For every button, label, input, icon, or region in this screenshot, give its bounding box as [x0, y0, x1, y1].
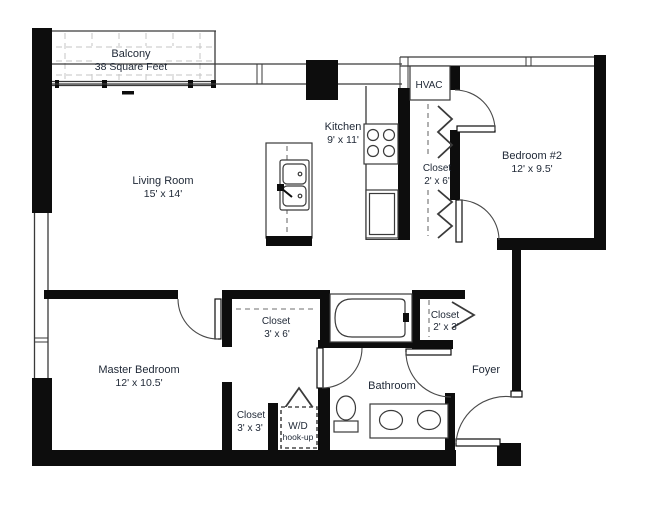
- kitchen-label: Kitchen: [325, 121, 362, 133]
- balcony-area: 38 Square Feet: [95, 61, 167, 73]
- closet-2x6-accordion-top-icon: [438, 106, 452, 158]
- toilet-icon: [334, 396, 358, 432]
- vanity-sinks-icon: [370, 404, 448, 438]
- floor-plan-svg: Balcony 38 Square Feet Living Room 15' x…: [0, 0, 647, 513]
- foyer-label: Foyer: [472, 364, 500, 376]
- master-bedroom-door: [178, 299, 221, 339]
- closet-2x3-dims: 2' x 3': [433, 322, 459, 333]
- bedroom2-entry-door: [456, 200, 499, 242]
- balcony-label: Balcony: [111, 48, 151, 60]
- bedroom2-label: Bedroom #2: [502, 150, 562, 162]
- living-room-dims: 15' x 14': [144, 188, 182, 200]
- walls: [32, 28, 606, 466]
- closet-3x3-dims: 3' x 3': [237, 423, 263, 434]
- bedroom2-dims: 12' x 9.5': [511, 163, 552, 175]
- refrigerator-icon: [366, 190, 398, 238]
- closet-2x6-accordion-bottom-icon: [438, 190, 452, 238]
- bathroom-label: Bathroom: [368, 380, 416, 392]
- closet-3x6-dims: 3' x 6': [264, 329, 290, 340]
- closet-2x6-label: Closet: [423, 163, 452, 174]
- bedroom2-upper-door: [455, 90, 495, 132]
- wd-hookup-label: hook-up: [283, 432, 314, 442]
- hvac-label: HVAC: [415, 80, 442, 91]
- island-sink-icon: [277, 160, 309, 210]
- kitchen-island: [266, 143, 312, 246]
- range-burners-icon: [364, 124, 398, 164]
- bathroom-door: [317, 348, 362, 388]
- living-room-label: Living Room: [132, 175, 193, 187]
- master-bedroom-dims: 12' x 10.5': [115, 377, 162, 389]
- wd-label: W/D: [288, 421, 307, 432]
- floor-plan: Balcony 38 Square Feet Living Room 15' x…: [0, 0, 647, 513]
- closet-2x3-label: Closet: [431, 310, 460, 321]
- closet-3x6-label: Closet: [262, 316, 291, 327]
- closet-3x3-label: Closet: [237, 410, 266, 421]
- kitchen-fixtures: [266, 86, 398, 246]
- windows: [34, 57, 594, 378]
- bathtub-icon: [330, 294, 412, 342]
- closet-2x6-dims: 2' x 6': [424, 176, 450, 187]
- master-bedroom-label: Master Bedroom: [98, 364, 179, 376]
- kitchen-dims: 9' x 11': [327, 134, 359, 146]
- labels: Balcony 38 Square Feet Living Room 15' x…: [95, 48, 562, 442]
- entry-door: [456, 396, 513, 446]
